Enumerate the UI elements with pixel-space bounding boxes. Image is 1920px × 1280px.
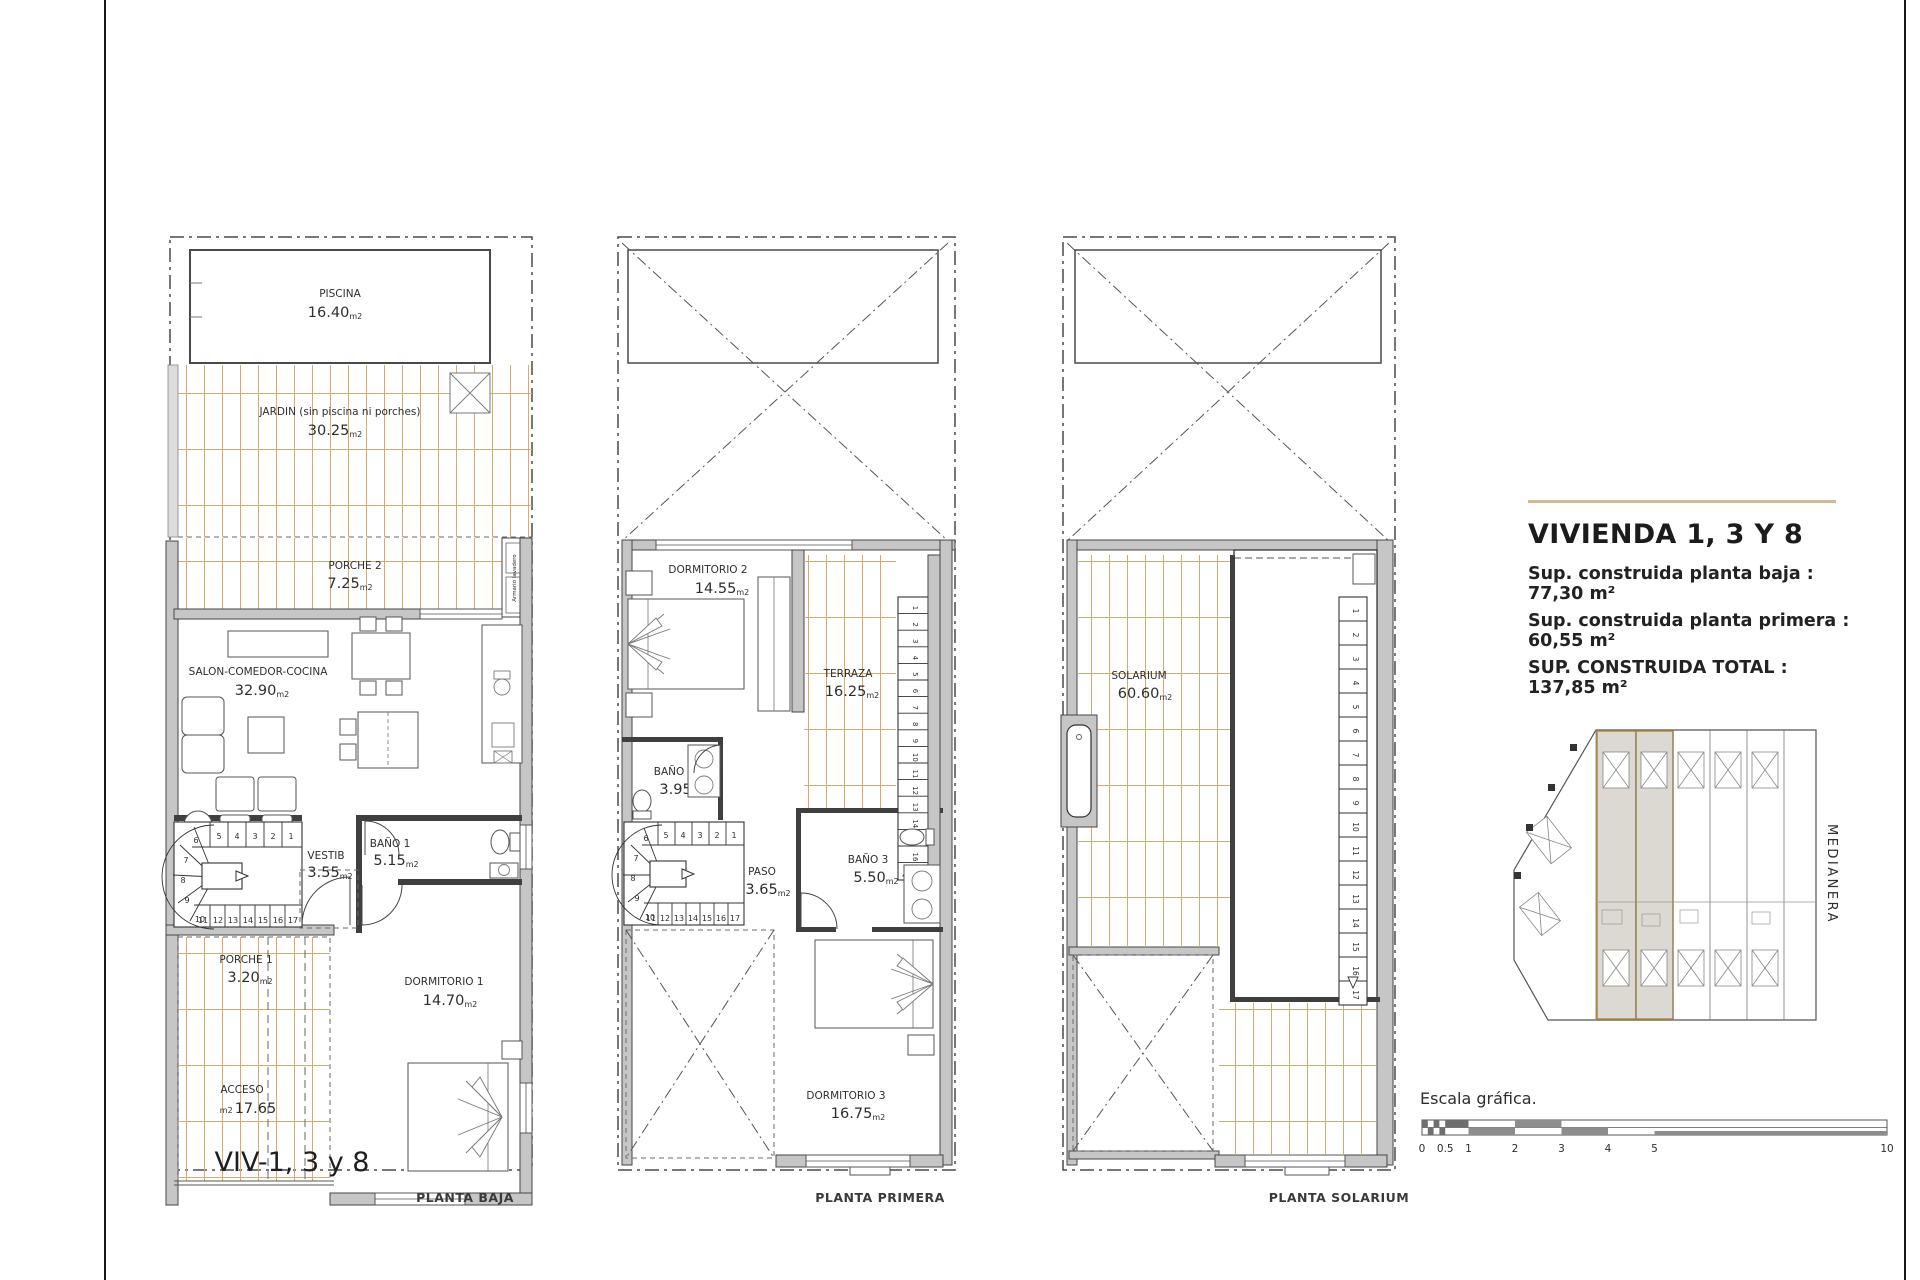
- svg-text:14: 14: [1351, 918, 1360, 928]
- paso: PASO 3.65m2: [745, 866, 837, 929]
- svg-text:4: 4: [680, 831, 685, 840]
- svg-text:2: 2: [270, 832, 275, 841]
- svg-text:4: 4: [1351, 681, 1360, 686]
- dining-table-icon: [352, 617, 410, 695]
- staircase-baja: 54321 6 7 8 9 10 11121314151617: [162, 822, 302, 929]
- bathtub-icon: [1061, 715, 1097, 827]
- svg-text:11: 11: [911, 770, 919, 779]
- bano1: BAÑO 1 5.15m2: [365, 821, 520, 878]
- toilet-icon: [633, 790, 651, 819]
- graphic-scale: Escala gráfica. 00.51234510: [1412, 1082, 1912, 1162]
- svg-text:0.5: 0.5: [1437, 1143, 1454, 1155]
- svg-text:15: 15: [1351, 942, 1360, 952]
- sink-icon: [490, 863, 518, 878]
- room-label-jardin: JARDIN (sin piscina ni porches): [259, 406, 421, 418]
- svg-text:16: 16: [911, 853, 919, 862]
- svg-text:9: 9: [911, 739, 919, 743]
- void-over-porche: [1073, 955, 1213, 1151]
- shaft-icon: [1353, 554, 1375, 584]
- sink-icon: [904, 865, 940, 923]
- svg-text:8: 8: [1351, 777, 1360, 782]
- svg-text:1: 1: [288, 832, 293, 841]
- bed-icon: [815, 940, 933, 1028]
- room-label-porche2: PORCHE 2: [328, 560, 381, 572]
- svg-text:5: 5: [911, 672, 919, 676]
- room-area-paso: 3.65m2: [745, 882, 790, 898]
- site-key-plan: MEDIANERA: [1500, 722, 1840, 1042]
- svg-text:13: 13: [228, 916, 238, 925]
- room-label-paso: PASO: [748, 866, 776, 878]
- room-label-dormitorio2: DORMITORIO 2: [668, 564, 747, 576]
- svg-text:2: 2: [1512, 1143, 1519, 1155]
- svg-text:3: 3: [697, 831, 702, 840]
- svg-text:17: 17: [288, 916, 298, 925]
- svg-text:10: 10: [1351, 822, 1360, 832]
- bed-icon: [628, 599, 744, 689]
- svg-text:4: 4: [234, 832, 239, 841]
- svg-text:3: 3: [911, 639, 919, 643]
- room-label-porche1: PORCHE 1: [219, 954, 272, 966]
- svg-text:5: 5: [1351, 705, 1360, 710]
- viv-label: VIV-1, 3 y 8: [215, 1147, 370, 1178]
- room-label-dormitorio3: DORMITORIO 3: [806, 1090, 885, 1102]
- void-over-garden: [622, 243, 948, 541]
- svg-text:10: 10: [911, 753, 919, 762]
- info-sup-baja: Sup. construida planta baja : 77,30 m²: [1528, 564, 1858, 604]
- svg-text:5: 5: [216, 832, 221, 841]
- bano3-door: [801, 893, 837, 929]
- svg-text:7: 7: [1351, 753, 1360, 758]
- stair-number: 6: [193, 836, 198, 845]
- svg-text:12: 12: [911, 786, 919, 795]
- room-area-bano3: 5.50m2: [853, 870, 898, 886]
- svg-text:3: 3: [1351, 657, 1360, 662]
- svg-text:13: 13: [911, 803, 919, 812]
- nightstand-icon: [626, 693, 652, 717]
- svg-text:15: 15: [702, 914, 712, 923]
- svg-text:4: 4: [911, 656, 919, 661]
- scale-bar: [1422, 1120, 1887, 1135]
- stair-number: 7: [183, 856, 188, 865]
- room-label-terraza: TERRAZA: [823, 668, 874, 680]
- jardin-area: JARDIN (sin piscina ni porches) 30.25m2: [168, 365, 532, 537]
- svg-text:11: 11: [1351, 846, 1360, 856]
- stair-number: 9: [184, 896, 189, 905]
- coffee-table-icon: [248, 717, 284, 753]
- svg-text:4: 4: [1605, 1143, 1612, 1155]
- stair-number: 8: [180, 876, 185, 885]
- room-label-salon: SALON-COMEDOR-COCINA: [189, 666, 329, 678]
- room-label-bano3: BAÑO 3: [848, 853, 889, 866]
- svg-text:1: 1: [1465, 1143, 1472, 1155]
- svg-text:11: 11: [198, 916, 208, 925]
- svg-text:9: 9: [1351, 801, 1360, 806]
- planta-primera-drawing: DORMITORIO 2 14.55m2 TERRAZA 16.25m2 123…: [610, 225, 960, 1220]
- svg-text:6: 6: [911, 689, 919, 694]
- bed-icon: [408, 1063, 508, 1171]
- svg-text:2: 2: [911, 622, 919, 626]
- caption-planta-solarium: PLANTA SOLARIUM: [1269, 1190, 1409, 1205]
- svg-text:17: 17: [1351, 990, 1360, 1000]
- dormitorio1-door: [362, 885, 402, 925]
- room-area-bano1: 5.15m2: [373, 853, 418, 869]
- svg-text:3: 3: [252, 832, 257, 841]
- dormitorio1: DORMITORIO 1 14.70m2: [404, 976, 522, 1171]
- svg-text:14: 14: [911, 819, 919, 828]
- svg-text:17: 17: [730, 914, 740, 923]
- svg-text:14: 14: [243, 916, 253, 925]
- stair-number: 7: [633, 854, 638, 863]
- bano2: BAÑO 2 3.95m2: [633, 745, 722, 819]
- terraza: TERRAZA 16.25m2: [804, 555, 896, 808]
- svg-text:8: 8: [911, 722, 919, 726]
- void-over-garden: [1067, 243, 1389, 541]
- room-area-dormitorio2: 14.55m2: [695, 581, 749, 597]
- room-area-dormitorio1: 14.70m2: [423, 993, 477, 1009]
- svg-text:16: 16: [716, 914, 726, 923]
- room-label-piscina: PISCINA: [319, 288, 361, 300]
- info-panel: VIVIENDA 1, 3 Y 8 Sup. construida planta…: [1528, 500, 1858, 705]
- room-label-bano1: BAÑO 1: [370, 837, 411, 850]
- svg-text:16: 16: [1351, 966, 1360, 976]
- room-label-dormitorio1: DORMITORIO 1: [404, 976, 483, 988]
- toilet-icon: [491, 830, 520, 854]
- room-area-salon: 32.90m2: [235, 683, 289, 699]
- salon-furniture: SALON-COMEDOR-COCINA 32.90m2: [182, 617, 522, 839]
- room-label-armario: Armario lavadero: [512, 554, 518, 602]
- stair-number: 6: [643, 834, 648, 843]
- svg-text:0: 0: [1419, 1143, 1426, 1155]
- sideboard-icon: [228, 631, 328, 657]
- svg-text:6: 6: [1351, 729, 1360, 734]
- room-label-vestib: VESTIB: [307, 850, 344, 862]
- kitchen-counter-icon: [482, 625, 522, 763]
- porche2-area: PORCHE 2 7.25m2: [178, 537, 532, 617]
- caption-planta-primera: PLANTA PRIMERA: [815, 1190, 945, 1205]
- staircase-primera: 54321 6 7 8 9 10 11121314151617: [612, 822, 744, 925]
- svg-text:1: 1: [731, 831, 736, 840]
- room-label-solarium: SOLARIUM: [1111, 670, 1166, 682]
- nightstand-icon: [626, 571, 652, 595]
- bano3: BAÑO 3 5.50m2: [848, 829, 940, 923]
- info-sup-primera: Sup. construida planta primera : 60,55 m…: [1528, 611, 1858, 651]
- room-area-dormitorio3: 16.75m2: [831, 1106, 885, 1122]
- nightstand-icon: [502, 1041, 522, 1059]
- caption-planta-baja: PLANTA BAJA: [416, 1190, 514, 1205]
- medianera-label: MEDIANERA: [1824, 824, 1839, 924]
- room-area-vestib: 3.55m2: [307, 865, 352, 881]
- svg-text:10: 10: [1880, 1143, 1893, 1155]
- stair-numbers-lower: 11121314151617: [646, 914, 740, 923]
- svg-text:11: 11: [646, 914, 656, 923]
- svg-text:1: 1: [1351, 609, 1360, 614]
- vivienda-title: VIVIENDA 1, 3 Y 8: [1528, 519, 1858, 550]
- scale-tick-labels: 00.51234510: [1419, 1143, 1894, 1155]
- scale-label: Escala gráfica.: [1420, 1089, 1537, 1108]
- svg-text:13: 13: [1351, 894, 1360, 904]
- svg-text:12: 12: [660, 914, 670, 923]
- svg-text:13: 13: [674, 914, 684, 923]
- void-over-porche: [626, 930, 774, 1158]
- stair-numbers-lower: 11121314151617: [198, 916, 298, 925]
- svg-text:15: 15: [258, 916, 268, 925]
- svg-text:12: 12: [1351, 870, 1360, 880]
- svg-text:16: 16: [273, 916, 283, 925]
- svg-text:5: 5: [1651, 1143, 1658, 1155]
- dormitorio3: DORMITORIO 3 16.75m2: [806, 940, 934, 1122]
- planta-solarium-drawing: SOLARIUM 60.60m2 12345678910111213141516…: [1055, 225, 1400, 1220]
- svg-text:1: 1: [911, 606, 919, 610]
- nightstand-icon: [908, 1035, 934, 1055]
- svg-text:12: 12: [213, 916, 223, 925]
- planta-baja-drawing: PISCINA 16.40m2 JARDIN (sin piscina ni p…: [150, 225, 540, 1220]
- svg-text:14: 14: [688, 914, 698, 923]
- svg-text:3: 3: [1558, 1143, 1565, 1155]
- room-label-acceso: ACCESO: [220, 1084, 263, 1096]
- info-sup-total: SUP. CONSTRUIDA TOTAL : 137,85 m²: [1528, 658, 1858, 698]
- kitchen-island-icon: [340, 712, 418, 768]
- stairwell-void: 1234567891011121314151617: [1230, 550, 1380, 1005]
- vestibulo: VESTIB 3.55m2: [300, 850, 358, 928]
- piscina-pool: PISCINA 16.40m2: [190, 250, 490, 363]
- stair-number: 9: [634, 894, 639, 903]
- svg-text:7: 7: [911, 705, 919, 709]
- stair-number: 8: [630, 874, 635, 883]
- accent-rule: [1528, 500, 1836, 503]
- svg-text:2: 2: [714, 831, 719, 840]
- svg-text:5: 5: [663, 831, 668, 840]
- garden-structure-icon: [450, 373, 490, 413]
- sink-icon: [688, 745, 720, 797]
- sheet-border-left: [104, 0, 106, 1280]
- dormitorio2: DORMITORIO 2 14.55m2: [626, 564, 790, 717]
- toilet-icon: [900, 829, 934, 845]
- svg-text:2: 2: [1351, 633, 1360, 638]
